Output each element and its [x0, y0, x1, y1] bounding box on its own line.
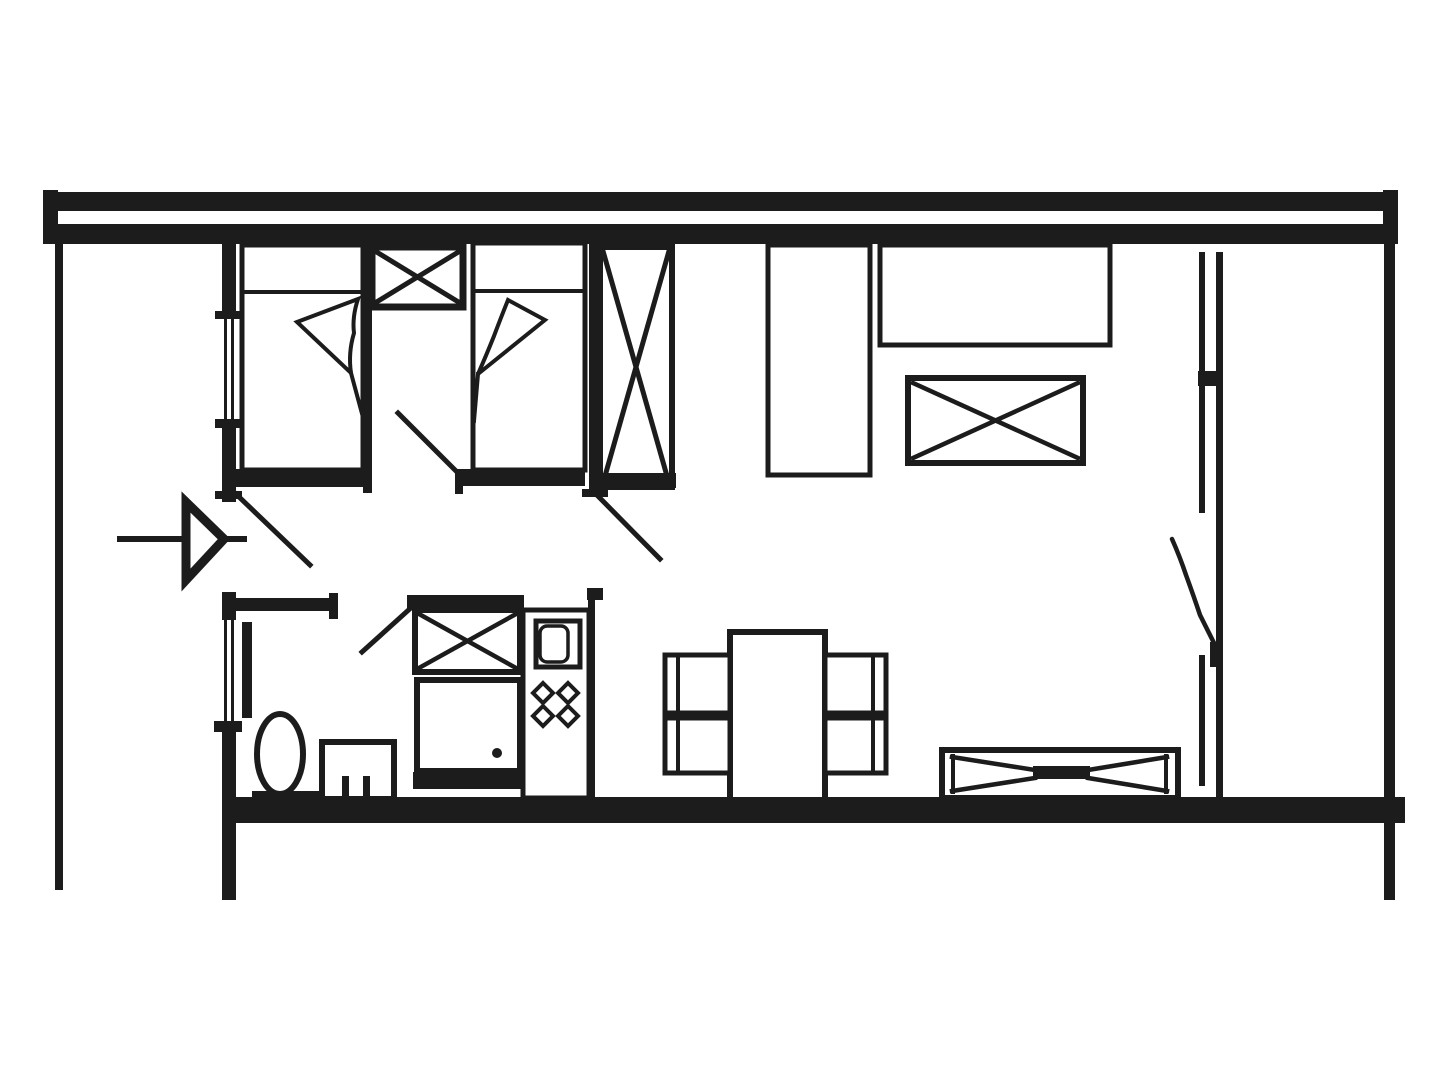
toilet-base: [252, 791, 321, 800]
bedroom2-door-leaf: [593, 491, 660, 559]
oven: [417, 680, 520, 771]
kitchen-closet-door-leaf: [362, 606, 413, 652]
oven-handle-dot: [492, 748, 502, 758]
bathroom-wall-end-tick: [329, 593, 338, 619]
entry-door-leaf: [236, 494, 310, 565]
left-wall-segment-a: [222, 244, 236, 313]
bath-fixture-tick-b: [363, 776, 370, 799]
kitchen-right-wall-line: [588, 598, 595, 798]
left-wall-segment-b: [222, 428, 236, 502]
balcony-window-outer-lower: [1199, 655, 1205, 786]
top-wall-right-cap: [1383, 190, 1398, 244]
kitchen-base-bar: [413, 772, 522, 789]
sink-bowl: [540, 626, 568, 662]
wardrobe-tall-base-bar: [593, 473, 676, 488]
left-wall-tick-4: [214, 721, 242, 732]
bed-2-foot-bar: [456, 469, 585, 486]
chair-bottom-left: [665, 718, 730, 773]
left-wall-tick-1: [215, 311, 242, 319]
terrace-left-edge-wall: [55, 244, 63, 890]
bath-fixture-box: [322, 742, 394, 799]
chair-top-left: [665, 655, 730, 713]
left-wall-segment-d: [222, 732, 236, 900]
bathroom-door-leaf-bar: [242, 622, 252, 718]
bed-1-foot-bar: [228, 469, 365, 487]
sofa-center-bar: [1033, 766, 1090, 779]
bedroom-window-glass-b: [231, 319, 234, 422]
floor-plan: [0, 0, 1440, 1080]
floor-plan-svg: [0, 0, 1440, 1080]
entry-arrow-head: [186, 502, 224, 580]
bedroom-window-glass-a: [224, 319, 227, 422]
dining-table: [730, 632, 825, 800]
top-wall-left-cap: [43, 190, 58, 244]
bathroom-window-glass-a: [224, 620, 227, 723]
tall-cabinet: [768, 245, 870, 475]
left-wall-tick-2: [215, 419, 242, 428]
toilet-bowl: [257, 714, 303, 794]
top-wall-upper-bar: [43, 192, 1398, 211]
balcony-door-leaf: [1172, 539, 1217, 649]
bathroom-window-glass-b: [231, 620, 234, 723]
top-wall-lower-bar: [55, 224, 1397, 244]
balcony-window-connector: [1198, 371, 1223, 386]
kitchen-counter: [880, 245, 1110, 345]
bedroom1-door-leaf: [398, 413, 461, 476]
chair-top-right: [825, 655, 886, 713]
balcony-window-inner-rail: [1216, 252, 1223, 798]
bathroom-wall: [232, 598, 334, 611]
bath-fixture-tick-a: [342, 776, 349, 799]
chair-bottom-right: [825, 718, 886, 773]
